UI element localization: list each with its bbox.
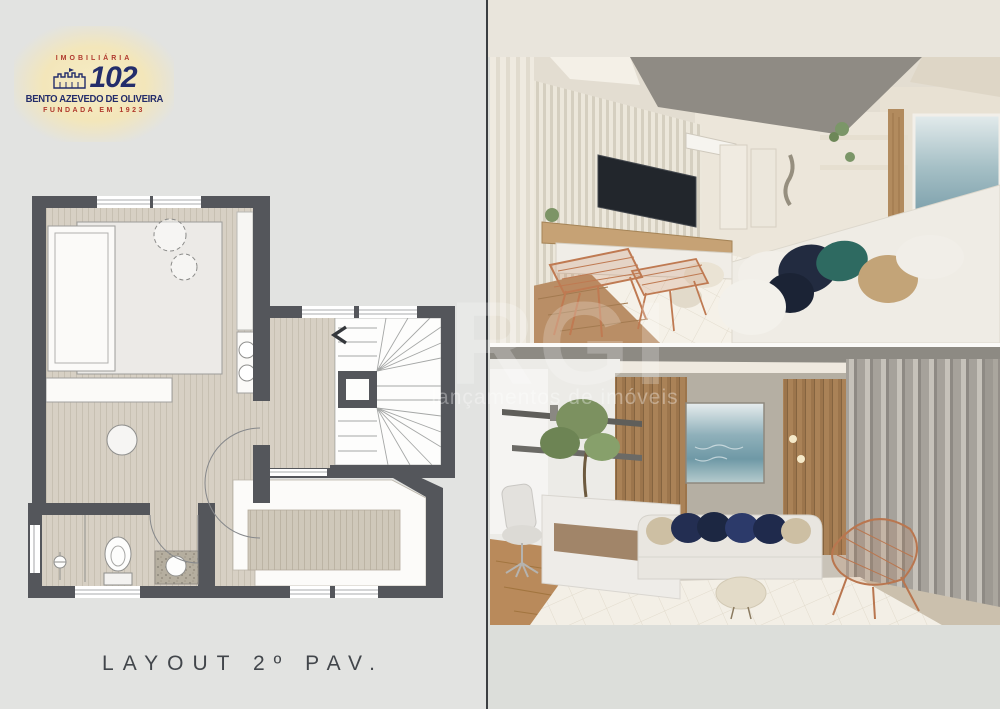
- hall-door: [720, 145, 747, 229]
- plan-stair-shaft-core: [346, 379, 369, 400]
- logo-emblem-row: 102: [51, 63, 136, 93]
- logo-founded-label: FUNDADA EM 1923: [43, 107, 145, 114]
- floor-plan-drawing: [28, 196, 458, 606]
- logo-agency-name: BENTO AZEVEDO DE OLIVEIRA: [25, 94, 163, 105]
- render-2-graphic: [490, 347, 1000, 625]
- render-photo-living-room: [490, 57, 1000, 343]
- right-panel-top-band: [488, 0, 1000, 57]
- castle-icon: [51, 66, 87, 90]
- round-pouf: [716, 577, 766, 609]
- plan-wood-deck: [248, 510, 400, 570]
- console-plant: [545, 208, 559, 222]
- seascape-painting: [686, 403, 764, 483]
- logo-number: 102: [89, 63, 136, 93]
- sofa: [638, 512, 822, 579]
- render-1-graphic: [490, 57, 1000, 343]
- panel-divider: [486, 0, 488, 709]
- floor-plan-caption: LAYOUT 2º PAV.: [28, 652, 458, 676]
- agency-logo: IMOBILIÁRIA 102 BENTO AZEVEDO DE OLIVEIR…: [14, 26, 174, 142]
- real-estate-listing-image: IMOBILIÁRIA 102 BENTO AZEVEDO DE OLIVEIR…: [0, 0, 1000, 709]
- wall-sconce: [789, 435, 797, 443]
- sheer-curtain: [490, 57, 534, 343]
- render-photo-home-office: [490, 347, 1000, 625]
